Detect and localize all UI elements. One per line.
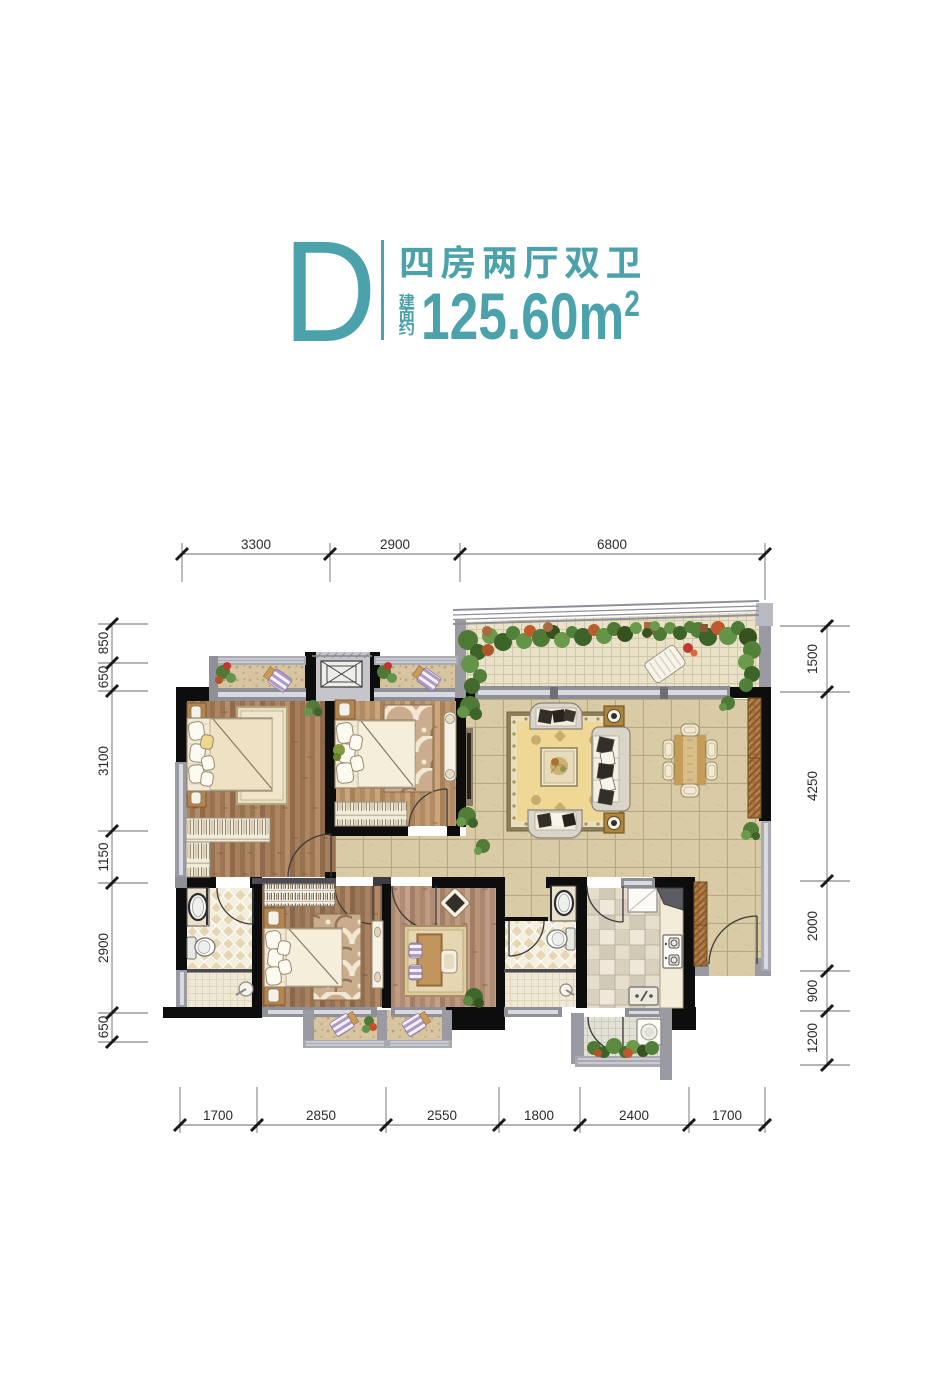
svg-text:1150: 1150	[96, 842, 111, 871]
svg-text:850: 850	[96, 632, 111, 655]
svg-text:650: 650	[96, 1016, 111, 1039]
svg-text:1800: 1800	[524, 1108, 554, 1123]
svg-text:1700: 1700	[712, 1108, 742, 1123]
svg-text:3100: 3100	[96, 746, 111, 776]
svg-text:900: 900	[805, 980, 820, 1003]
svg-text:1700: 1700	[203, 1108, 233, 1123]
svg-text:650: 650	[96, 666, 111, 689]
svg-text:2550: 2550	[427, 1108, 457, 1123]
svg-text:2000: 2000	[805, 911, 820, 941]
svg-text:4250: 4250	[805, 771, 820, 801]
svg-text:2850: 2850	[306, 1108, 336, 1123]
svg-text:2900: 2900	[380, 537, 410, 552]
svg-text:1200: 1200	[805, 1023, 820, 1053]
svg-text:1500: 1500	[805, 644, 820, 674]
svg-text:3300: 3300	[241, 537, 271, 552]
svg-text:2400: 2400	[619, 1108, 649, 1123]
svg-text:6800: 6800	[597, 537, 627, 552]
svg-text:2900: 2900	[96, 933, 111, 963]
